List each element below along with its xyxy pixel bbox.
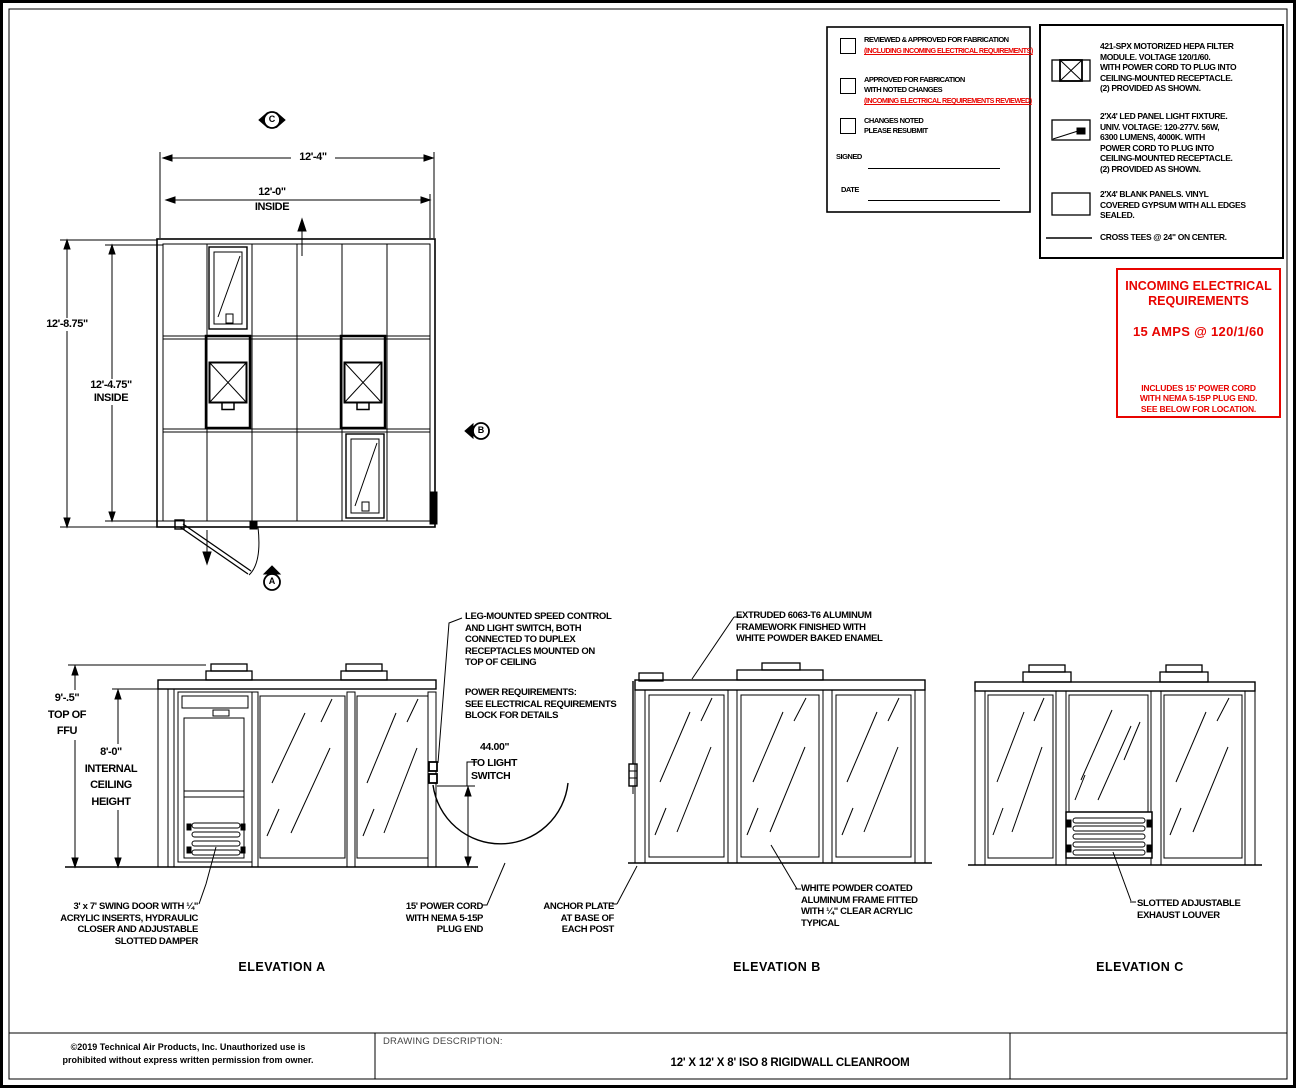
elevation-b-label: ELEVATION B [727,960,827,974]
section-marker-a-letter: A [264,576,280,586]
copyright-notice: ©2019 Technical Air Products, Inc. Unaut… [12,1041,364,1066]
power-cord [629,673,663,794]
hepa-filter-symbol [1052,60,1090,81]
electrical-requirements-title: INCOMING ELECTRICAL REQUIREMENTS [1117,279,1280,309]
elev-b-note-acrylic: WHITE POWDER COATED ALUMINUM FRAME FITTE… [801,883,931,929]
plan-led-fixture-2 [346,434,384,518]
led-light-symbol [1052,120,1090,140]
plan-dim-overall-width: 12'-4" [291,151,335,164]
drawing-title: 12' X 12' X 8' ISO 8 RIGIDWALL CLEANROOM [540,1057,1040,1069]
elev-a-note-speed-control: LEG-MOUNTED SPEED CONTROL AND LIGHT SWIT… [465,611,625,669]
signed-line[interactable] [868,168,1000,169]
elev-a-dim-ceiling-height: 8'-0" INTERNAL CEILING HEIGHT [80,744,142,810]
date-line[interactable] [868,200,1000,201]
approval-checkbox-2[interactable] [840,78,856,94]
cleanroom-drawing-sheet: REVIEWED & APPROVED FOR FABRICATION (INC… [0,0,1296,1088]
elev-a-dim-top-of-ffu: 9'-.5" TOP OF FFU [38,690,96,740]
approval-checkbox-1[interactable] [840,38,856,54]
plan-switch-box [430,492,437,524]
plan-flow-arrows [203,219,306,564]
plan-dim-inside-depth: 12'-4.75" INSIDE [80,379,142,405]
signed-label: SIGNED [836,152,862,162]
plan-hepa-module-2 [341,336,385,428]
legend-item-blank-panel: 2'X4' BLANK PANELS. VINYL COVERED GYPSUM… [1100,189,1275,221]
electrical-requirements-note: INCLUDES 15' POWER CORD WITH NEMA 5-15P … [1117,383,1280,414]
section-marker-b-letter: B [473,425,489,435]
approval-option-3-label: CHANGES NOTED PLEASE RESUBMIT [864,116,928,135]
power-cord-reach-arc [433,783,568,844]
plan-dim-overall-depth: 12'-8.75" [37,318,97,331]
approval-option-2-red-note: (INCOMING ELECTRICAL REQUIREMENTS REVIEW… [864,96,1032,106]
blank-panel-symbol [1052,193,1090,215]
elev-b-note-anchor-plate: ANCHOR PLATE AT BASE OF EACH POST [538,901,614,936]
plan-swing-door [175,520,259,575]
plan-dim-inside-width: 12'-0" [250,186,294,199]
elev-b-note-framework: EXTRUDED 6063-T6 ALUMINUM FRAMEWORK FINI… [736,610,896,645]
elev-a-note-swing-door: 3' x 7' SWING DOOR WITH ¼" ACRYLIC INSER… [50,901,198,947]
elevation-c-label: ELEVATION C [1090,960,1190,974]
legend-item-led: 2'X4' LED PANEL LIGHT FIXTURE. UNIV. VOL… [1100,111,1275,175]
plan-led-fixture-1 [209,247,247,329]
elevation-a-door [178,692,252,862]
plan-hepa-module-1 [206,336,250,428]
date-label: DATE [841,185,859,195]
elevation-a-label: ELEVATION A [232,960,332,974]
section-marker-c-letter: C [264,114,280,124]
elevation-a-glass-hatch [267,699,418,836]
elevation-b-glass-hatch [655,698,899,835]
approval-checkbox-3[interactable] [840,118,856,134]
elev-c-note-louver: SLOTTED ADJUSTABLE EXHAUST LOUVER [1137,898,1257,921]
approval-option-1-red-note: (INCLUDING INCOMING ELECTRICAL REQUIREME… [864,46,1033,56]
electrical-requirements-rating: 15 AMPS @ 120/1/60 [1117,324,1280,339]
elev-a-dim-44in: 44.00" [480,741,509,754]
elevation-c-leaders [1113,852,1136,902]
elev-a-note-power-requirements: POWER REQUIREMENTS: SEE ELECTRICAL REQUI… [465,687,625,722]
elevation-c-drawing [968,665,1262,902]
drawing-description-label: DRAWING DESCRIPTION: [383,1036,503,1047]
plan-inside-width-label: INSIDE [250,201,294,214]
plan-view [60,112,489,590]
legend-item-hepa: 421-SPX MOTORIZED HEPA FILTER MODULE. VO… [1100,41,1275,94]
elev-a-note-power-cord: 15' POWER CORD WITH NEMA 5-15P PLUG END [395,901,483,936]
approval-option-1-label: REVIEWED & APPROVED FOR FABRICATION [864,35,1009,45]
exhaust-louver [1066,812,1152,858]
legend-item-cross-tees: CROSS TEES @ 24" ON CENTER. [1100,232,1275,243]
elevation-b-leaders [612,617,801,904]
elevation-b-drawing [612,617,932,904]
elev-a-dim-44in-label: TO LIGHT SWITCH [471,757,517,783]
approval-option-2-label: APPROVED FOR FABRICATION WITH NOTED CHAN… [864,75,965,94]
